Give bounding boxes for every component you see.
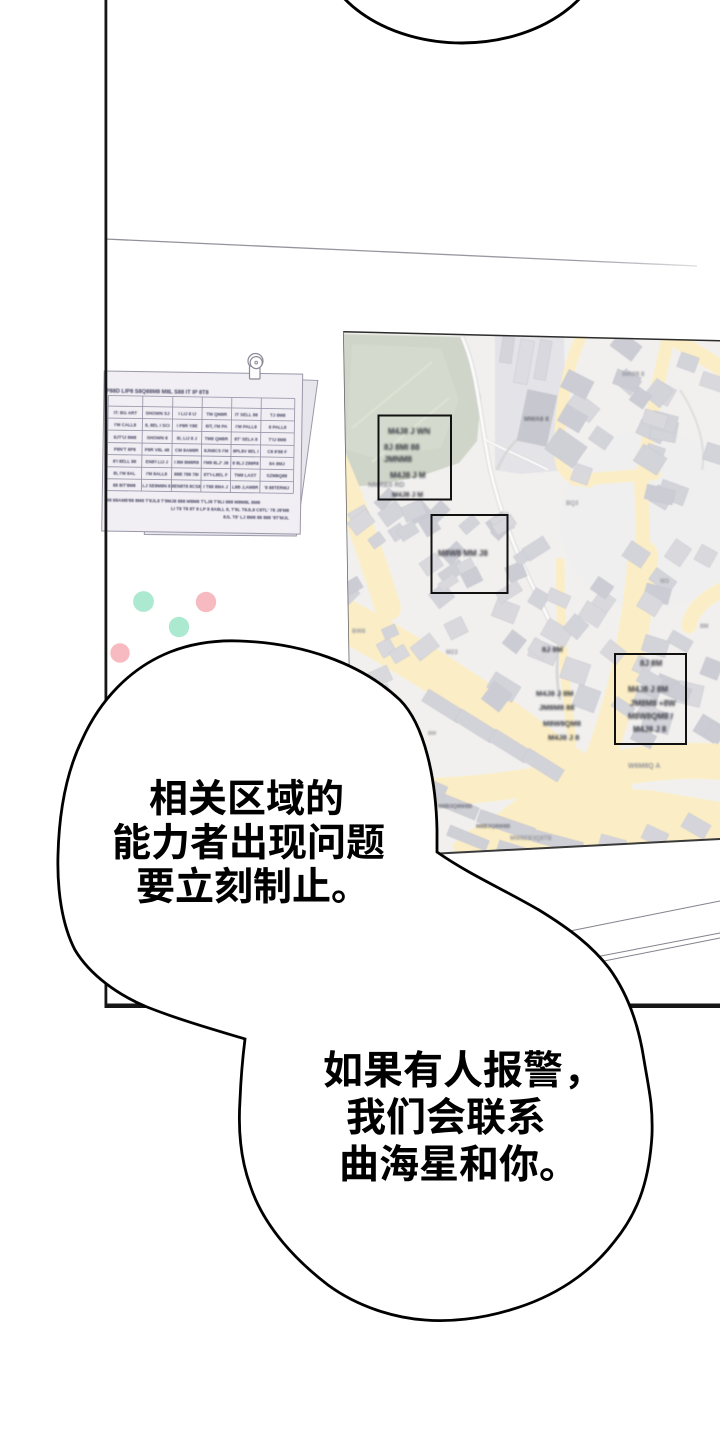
svg-text:P8R V8L 48: P8R V8L 48 — [145, 447, 170, 452]
svg-text:8MW8 8: 8MW8 8 — [622, 372, 645, 378]
svg-text:8JT'IJ 8M8: 8JT'IJ 8M8 — [114, 434, 137, 439]
svg-text:I T88 8MA J: I T88 8MA J — [203, 484, 228, 489]
svg-text:88 8IT'8M8: 88 8IT'8M8 — [113, 483, 136, 488]
svg-text:SZM8Q88: SZM8Q88 — [267, 473, 288, 478]
svg-text:8J 8M: 8J 8M — [542, 645, 563, 654]
svg-text:'8 88TERMJ: '8 88TERMJ — [264, 485, 290, 490]
svg-text:M4J8 J 8: M4J8 J 8 — [548, 733, 579, 742]
svg-text:M8B3Q8W8B: M8B3Q8W8B — [476, 824, 510, 830]
svg-text:M4J8 J 8: M4J8 J 8 — [633, 725, 667, 734]
svg-text:IT: BG ART: IT: BG ART — [114, 410, 138, 415]
svg-text:MW8EB3Q8TB: MW8EB3Q8TB — [510, 836, 552, 842]
svg-text:M4J8 J WN: M4J8 J WN — [388, 427, 430, 436]
svg-text:BQ3: BQ3 — [566, 501, 579, 507]
svg-text:M4J8 J M: M4J8 J M — [392, 492, 423, 499]
svg-text:MWA8 8: MWA8 8 — [524, 416, 549, 423]
svg-text:I'M PALL8: I'M PALL8 — [236, 424, 258, 429]
svg-text:M4J8 J 8M: M4J8 J 8M — [536, 689, 574, 698]
svg-text:JMNM8: JMNM8 — [384, 455, 413, 464]
svg-text:8 8LJ Z88R8: 8 8LJ Z88R8 — [232, 461, 259, 466]
svg-text:LJ SE8M8N 8: LJ SE8M8N 8 — [142, 483, 171, 488]
svg-text:8JN8CS I'M: 8JN8CS I'M — [204, 448, 229, 453]
svg-text:TM8 LAST: TM8 LAST — [234, 473, 256, 478]
svg-text:JM8M8 88: JM8M8 88 — [539, 703, 574, 712]
svg-text:C8 8'88 F: C8 8'88 F — [267, 449, 287, 454]
svg-text:8J 8MI 88: 8J 8MI 88 — [384, 443, 420, 452]
svg-text:M8B3Q8W8B: M8B3Q8W8B — [438, 804, 472, 810]
svg-text:TM8 QM8R: TM8 QM8R — [205, 436, 229, 441]
svg-text:TJ 8M8: TJ 8M8 — [270, 413, 286, 418]
svg-text:8PL8V 8EL I: 8PL8V 8EL I — [233, 449, 259, 454]
svg-text:8I, LIJ 8 J: 8I, LIJ 8 J — [177, 435, 198, 440]
svg-text:W6M8Q A: W6M8Q A — [628, 763, 660, 770]
svg-text:TM QM8R: TM QM8R — [206, 412, 228, 417]
svg-text:EN8'I LIJ J: EN8'I LIJ J — [145, 459, 168, 464]
svg-text:I P8R Y8E: I P8R Y8E — [177, 423, 198, 428]
svg-text:P8N'T 8P8: P8N'T 8P8 — [114, 447, 136, 452]
svg-text:I'M CALL8: I'M CALL8 — [114, 422, 136, 427]
svg-text:8M: 8M — [700, 624, 708, 630]
svg-text:M4J8 J M: M4J8 J M — [390, 471, 426, 480]
svg-text:I LIJ 8 IJ: I LIJ 8 IJ — [178, 411, 196, 416]
svg-text:BW8: BW8 — [352, 629, 366, 635]
svg-text:M8W8QM8 /: M8W8QM8 / — [628, 712, 674, 721]
svg-text:8J 8M: 8J 8M — [640, 659, 663, 668]
svg-text:M23: M23 — [446, 650, 458, 656]
svg-text:8, 8EL I SCI: 8, 8EL I SCI — [145, 423, 170, 428]
svg-text:8W: 8W — [428, 731, 437, 737]
svg-text:IT SELL 88: IT SELL 88 — [235, 412, 258, 417]
svg-text:CM 8AM8R: CM 8AM8R — [175, 448, 199, 453]
svg-text:8'I 8ELL 88: 8'I 8ELL 88 — [113, 459, 137, 464]
svg-text:L8B J,AM8R: L8B J,AM8R — [232, 485, 259, 490]
svg-text:M4J8 J 8M: M4J8 J 8M — [628, 685, 668, 694]
svg-text:M8W8 MM J8: M8W8 MM J8 — [438, 549, 488, 558]
svg-text:8T' SELA 8: 8T' SELA 8 — [234, 436, 258, 441]
svg-text:8EN8T8 8CS8: 8EN8T8 8CS8 — [172, 484, 202, 489]
svg-text:88B 788 78I: 88B 788 78I — [174, 472, 199, 477]
svg-text:JM8M8 +8W: JM8M8 +8W — [630, 699, 676, 708]
svg-text:8JL T8' LJ 8M8 88 888 '8T'MJL: 8JL T8' LJ 8M8 88 888 '8T'MJL — [223, 514, 289, 520]
svg-text:I 8M 8M8R8: I 8M 8M8R8 — [174, 460, 199, 465]
svg-text:8I, I'M 8AL: 8I, I'M 8AL — [113, 471, 135, 476]
svg-text:I'M8 8LJ' J8: I'M8 8LJ' J8 — [204, 460, 229, 465]
svg-text:T'IJ 8M8: T'IJ 8M8 — [269, 437, 287, 442]
svg-text:SHOWN SJ: SHOWN SJ — [146, 411, 171, 416]
svg-text:8 PALL8: 8 PALL8 — [269, 425, 287, 430]
svg-text:M8W8QM8: M8W8QM8 — [543, 719, 581, 728]
svg-text:I'M 8ALL8: I'M 8ALL8 — [146, 471, 168, 476]
svg-text:8IT, I'M PA: 8IT, I'M PA — [206, 424, 229, 429]
svg-text:8A 8MJ: 8A 8MJ — [269, 461, 285, 466]
svg-text:SHOWN 8: SHOWN 8 — [147, 435, 169, 440]
svg-text:8T'I-L8EL F: 8T'I-L8EL F — [204, 472, 228, 477]
svg-text:W3: W3 — [660, 579, 670, 585]
svg-text:NMRE0 RD: NMRE0 RD — [368, 482, 405, 489]
